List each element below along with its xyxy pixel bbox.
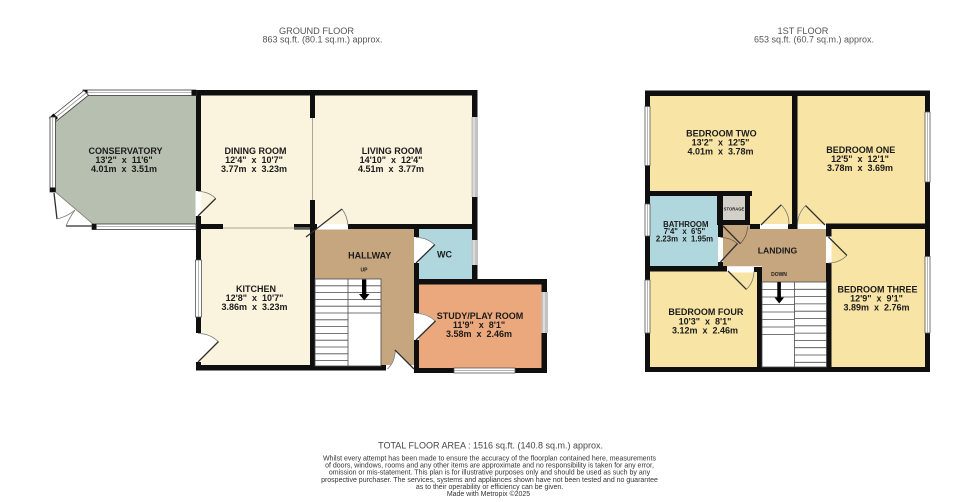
- svg-text:TOTAL FLOOR AREA : 1516 sq.ft.: TOTAL FLOOR AREA : 1516 sq.ft. (140.8 sq…: [378, 441, 603, 451]
- svg-text:3.78m x 3.69m: 3.78m x 3.69m: [827, 163, 893, 173]
- svg-text:2.23m x 1.95m: 2.23m x 1.95m: [656, 235, 713, 244]
- svg-text:3.77m x 3.23m: 3.77m x 3.23m: [221, 164, 287, 174]
- svg-text:3.12m x 2.46m: 3.12m x 2.46m: [672, 325, 738, 335]
- svg-text:4.01m x 3.51m: 4.01m x 3.51m: [91, 164, 157, 174]
- svg-text:HALLWAY: HALLWAY: [348, 250, 391, 260]
- svg-text:LANDING: LANDING: [758, 245, 798, 255]
- svg-text:3.89m x 2.76m: 3.89m x 2.76m: [843, 303, 909, 313]
- svg-text:WC: WC: [437, 249, 452, 259]
- svg-text:UP: UP: [361, 268, 369, 274]
- svg-text:DOWN: DOWN: [771, 272, 787, 278]
- svg-text:Whilst every attempt has been: Whilst every attempt has been made to en…: [323, 456, 657, 463]
- svg-text:of doors, windows, rooms and a: of doors, windows, rooms and any other i…: [325, 463, 654, 470]
- svg-text:Made with Metropix ©2025: Made with Metropix ©2025: [447, 490, 530, 498]
- svg-text:3.58m x 2.46m: 3.58m x 2.46m: [446, 329, 512, 339]
- svg-text:as to their operability or eff: as to their operability or efficiency ca…: [416, 484, 563, 491]
- svg-text:omission or mis-statement. Thi: omission or mis-statement. This plan is …: [329, 470, 651, 477]
- svg-text:863 sq.ft. (80.1 sq.m.) approx: 863 sq.ft. (80.1 sq.m.) approx.: [262, 35, 382, 45]
- svg-text:3.86m x 3.23m: 3.86m x 3.23m: [221, 302, 287, 312]
- svg-text:STORAGE: STORAGE: [724, 207, 745, 212]
- svg-text:4.01m x 3.78m: 4.01m x 3.78m: [687, 147, 753, 157]
- svg-text:653 sq.ft. (60.7 sq.m.) approx: 653 sq.ft. (60.7 sq.m.) approx.: [754, 35, 874, 45]
- svg-text:4.51m x 3.77m: 4.51m x 3.77m: [358, 164, 424, 174]
- svg-text:prospective purchaser. The ser: prospective purchaser. The services, sys…: [321, 477, 658, 484]
